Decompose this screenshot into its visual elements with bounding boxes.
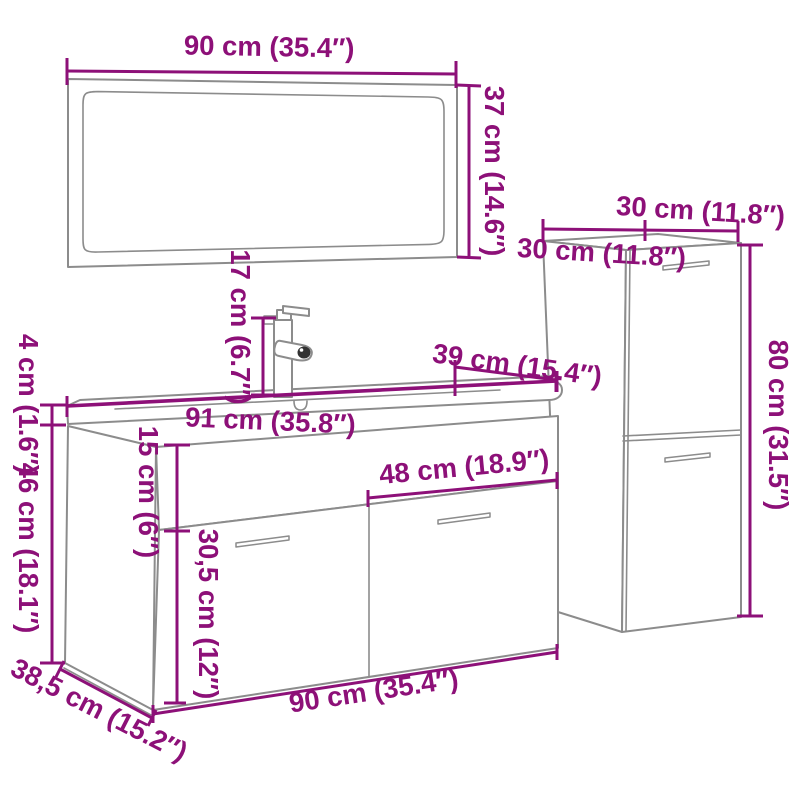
label-counter-thickness: 4 cm (1.6″) — [13, 334, 44, 474]
faucet-spout-highlight — [300, 348, 304, 352]
dim-tick — [457, 85, 481, 86]
furniture-dimension-diagram: 90 cm (35.4″) 37 cm (14.6″) 17 cm (6.7″)… — [0, 0, 800, 800]
label-door-height: 30,5 cm (12″) — [193, 529, 224, 700]
dim-line-mirror-width — [67, 71, 456, 74]
dim-tick — [457, 257, 481, 258]
label-basin-width: 91 cm (35.8″) — [184, 401, 356, 439]
dim-line-side-cabinet-top — [543, 229, 738, 231]
label-basin-front-height: 15 cm (6″) — [133, 426, 164, 558]
label-vanity-body-height: 46 cm (18.1″) — [13, 463, 44, 634]
faucet — [264, 306, 312, 397]
label-mirror-width: 90 cm (35.4″) — [184, 30, 355, 64]
label-mirror-height: 37 cm (14.6″) — [479, 86, 510, 257]
diagram-canvas: 90 cm (35.4″) 37 cm (14.6″) 17 cm (6.7″)… — [0, 0, 800, 800]
mirror-outer-frame — [68, 79, 457, 267]
label-faucet-height: 17 cm (6.7″) — [225, 249, 256, 404]
side-cabinet — [543, 234, 741, 632]
faucet-spout-opening — [298, 347, 311, 359]
label-side-cabinet-height: 80 cm (31.5″) — [763, 340, 794, 511]
mirror — [68, 79, 457, 267]
label-side-cabinet-width: 30 cm (11.8″) — [615, 190, 786, 231]
